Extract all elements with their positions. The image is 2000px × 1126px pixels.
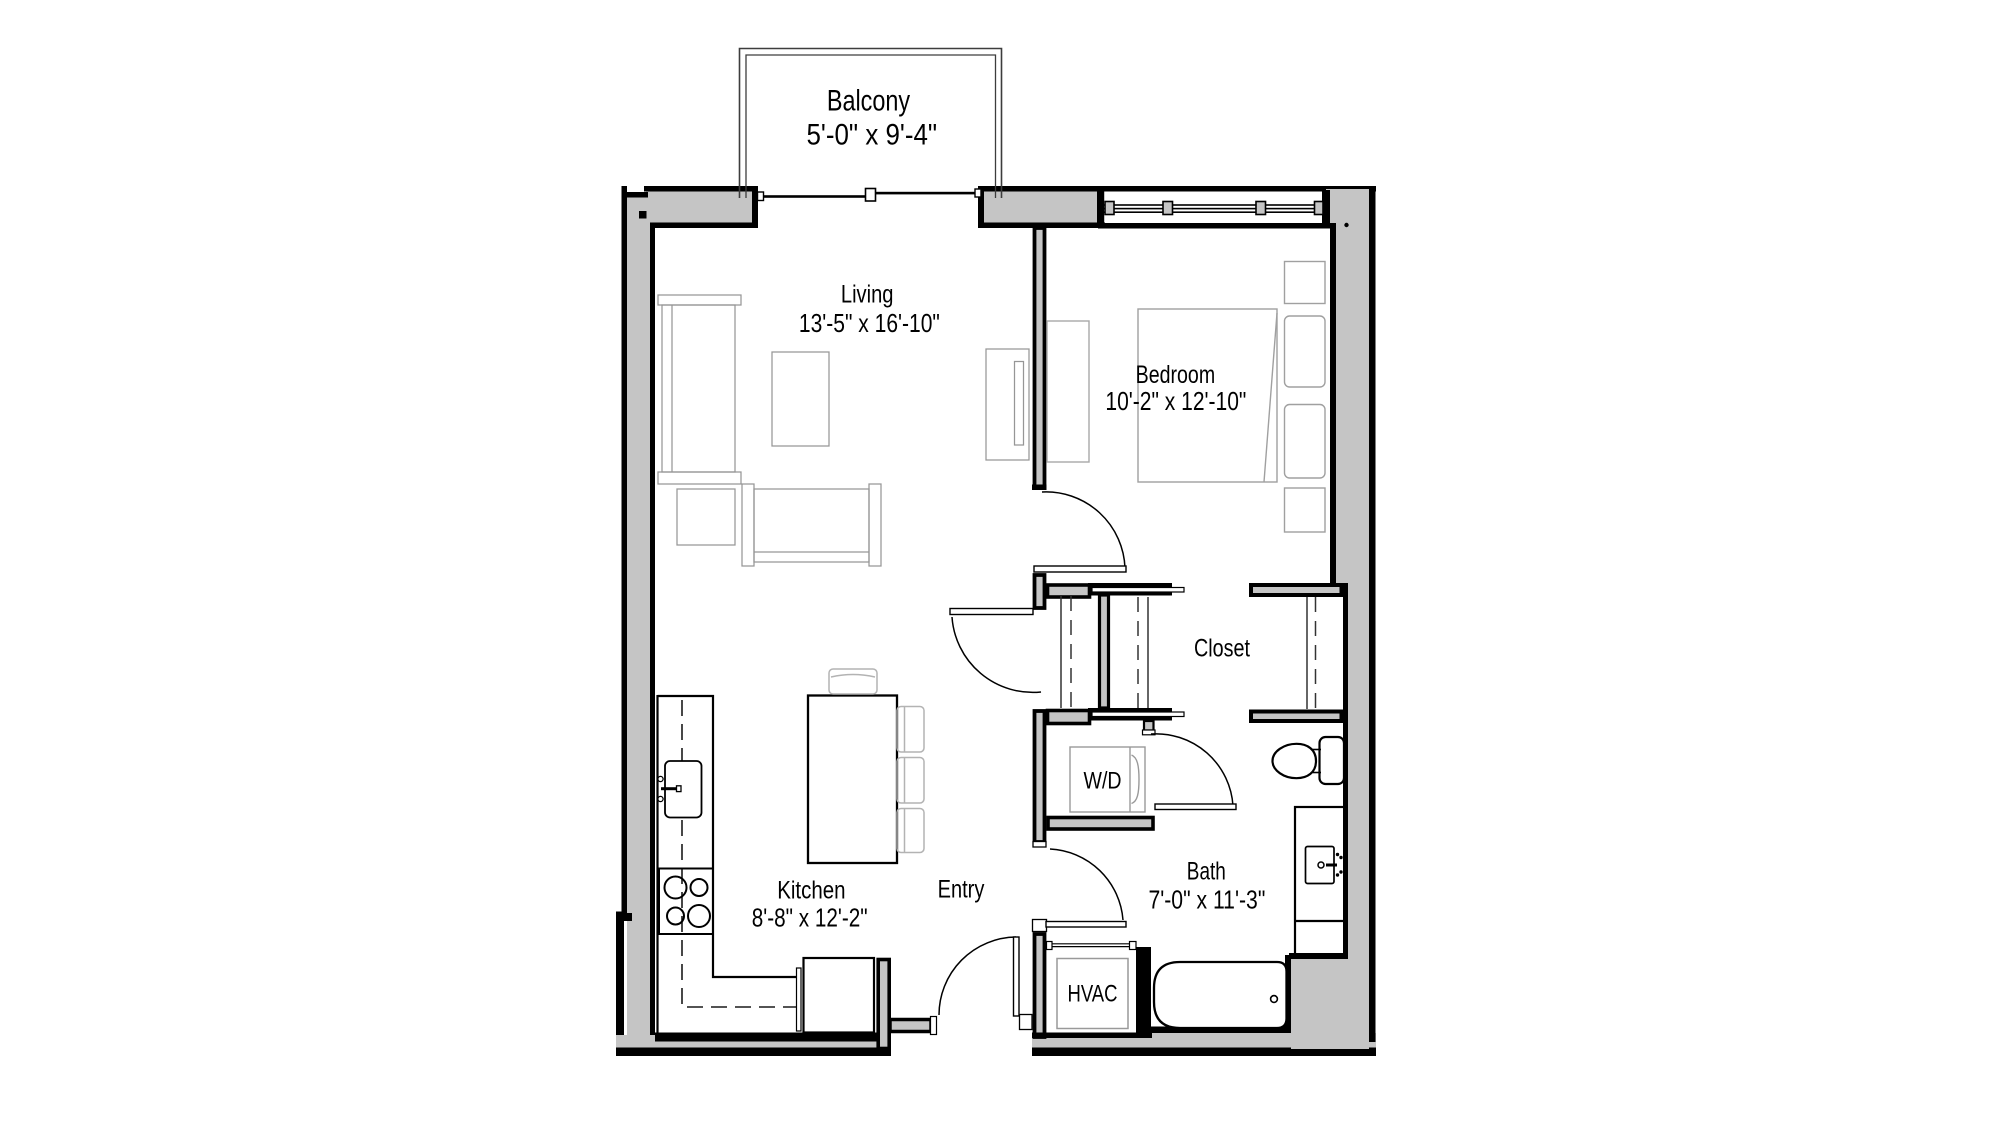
- svg-text:5'-0" x 9'-4": 5'-0" x 9'-4": [807, 118, 938, 151]
- svg-text:13'-5" x 16'-10": 13'-5" x 16'-10": [799, 308, 940, 338]
- svg-text:Entry: Entry: [938, 876, 985, 904]
- svg-text:Closet: Closet: [1194, 635, 1250, 663]
- svg-text:8'-8" x 12'-2": 8'-8" x 12'-2": [752, 903, 868, 933]
- svg-text:7'-0" x 11'-3": 7'-0" x 11'-3": [1148, 885, 1265, 915]
- svg-text:Bedroom: Bedroom: [1136, 361, 1216, 389]
- svg-text:Living: Living: [841, 281, 894, 309]
- svg-text:10'-2" x 12'-10": 10'-2" x 12'-10": [1105, 386, 1246, 416]
- svg-text:Bath: Bath: [1187, 858, 1226, 886]
- svg-text:Balcony: Balcony: [827, 85, 910, 118]
- svg-text:HVAC: HVAC: [1068, 981, 1118, 1008]
- svg-text:Kitchen: Kitchen: [777, 876, 845, 904]
- svg-text:W/D: W/D: [1084, 768, 1122, 795]
